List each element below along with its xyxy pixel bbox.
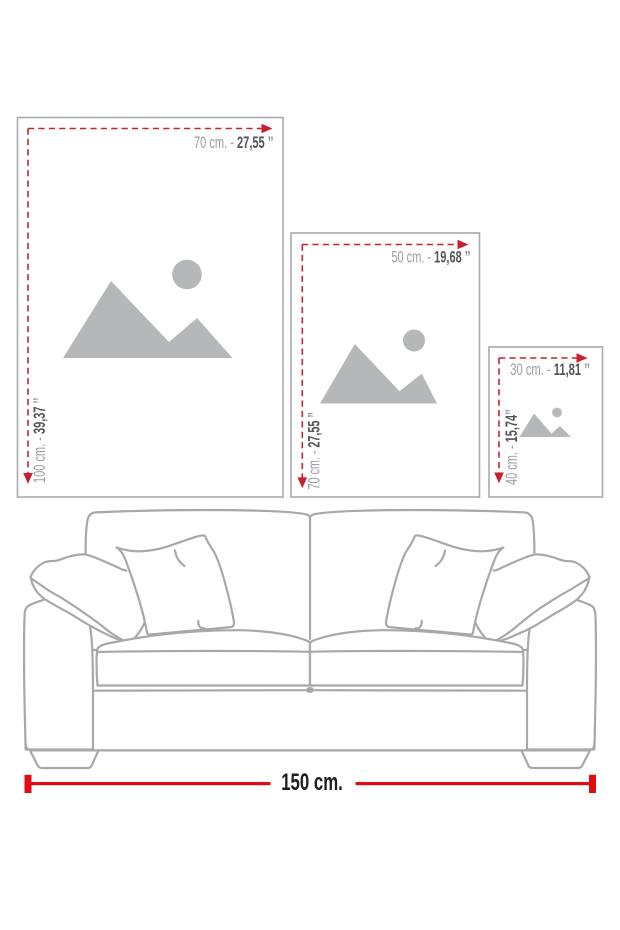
svg-text:70 cm. - 27,55 ’’: 70 cm. - 27,55 ’’ (305, 412, 323, 489)
svg-text:100 cm. - 39,37 ’’: 100 cm. - 39,37 ’’ (30, 398, 49, 483)
svg-text:50 cm. - 19,68 ’’: 50 cm. - 19,68 ’’ (391, 247, 470, 266)
svg-text:30 cm. - 11,81 ’’: 30 cm. - 11,81 ’’ (510, 360, 590, 379)
svg-text:150 cm.: 150 cm. (281, 769, 343, 796)
svg-text:70 cm. - 27,55 ’’: 70 cm. - 27,55 ’’ (194, 133, 273, 152)
svg-text:40 cm. - 15,74’’: 40 cm. - 15,74’’ (502, 409, 521, 485)
